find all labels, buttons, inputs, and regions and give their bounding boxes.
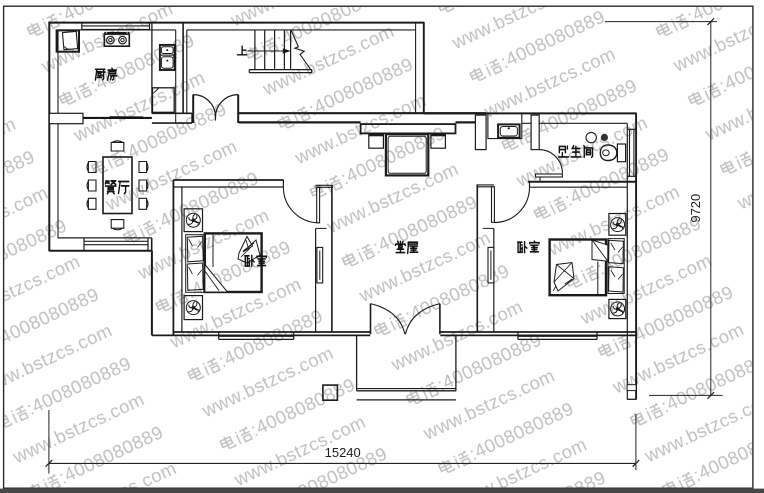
svg-text:15240: 15240 <box>325 445 361 460</box>
svg-text:9720: 9720 <box>688 194 703 223</box>
